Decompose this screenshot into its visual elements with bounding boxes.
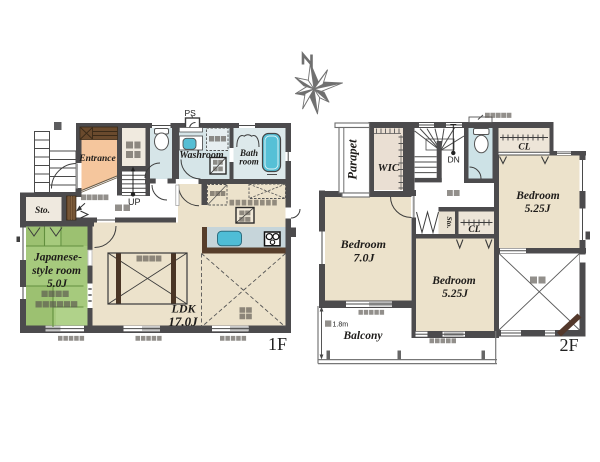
svg-text:5.25J: 5.25J: [525, 203, 552, 215]
svg-text:5.25J: 5.25J: [442, 288, 469, 300]
svg-text:1F: 1F: [268, 334, 287, 354]
svg-text:2F: 2F: [559, 335, 578, 355]
svg-text:17.0J: 17.0J: [168, 314, 198, 329]
svg-text:Bedroom: Bedroom: [431, 275, 476, 287]
svg-text:CL: CL: [468, 225, 480, 235]
svg-text:Sto.: Sto.: [35, 206, 50, 216]
svg-text:style room: style room: [31, 265, 81, 277]
svg-text:CL: CL: [518, 143, 530, 153]
svg-text:Bedroom: Bedroom: [515, 190, 560, 202]
svg-text:Balcony: Balcony: [343, 330, 384, 342]
svg-text:Japanese-: Japanese-: [33, 252, 82, 264]
svg-text:Bedroom: Bedroom: [340, 237, 386, 251]
svg-text:Entrance: Entrance: [78, 154, 116, 164]
svg-text:5.0J: 5.0J: [47, 278, 68, 290]
svg-text:PS: PS: [185, 108, 197, 118]
svg-text:1.8m: 1.8m: [333, 321, 349, 328]
svg-text:7.0J: 7.0J: [354, 251, 376, 265]
svg-text:Parapet: Parapet: [346, 139, 360, 180]
svg-text:DN: DN: [448, 155, 460, 165]
svg-text:room: room: [239, 157, 259, 167]
svg-text:Washroom: Washroom: [179, 150, 223, 161]
svg-text:Sto.: Sto.: [445, 217, 454, 229]
svg-text:WIC: WIC: [378, 162, 400, 174]
